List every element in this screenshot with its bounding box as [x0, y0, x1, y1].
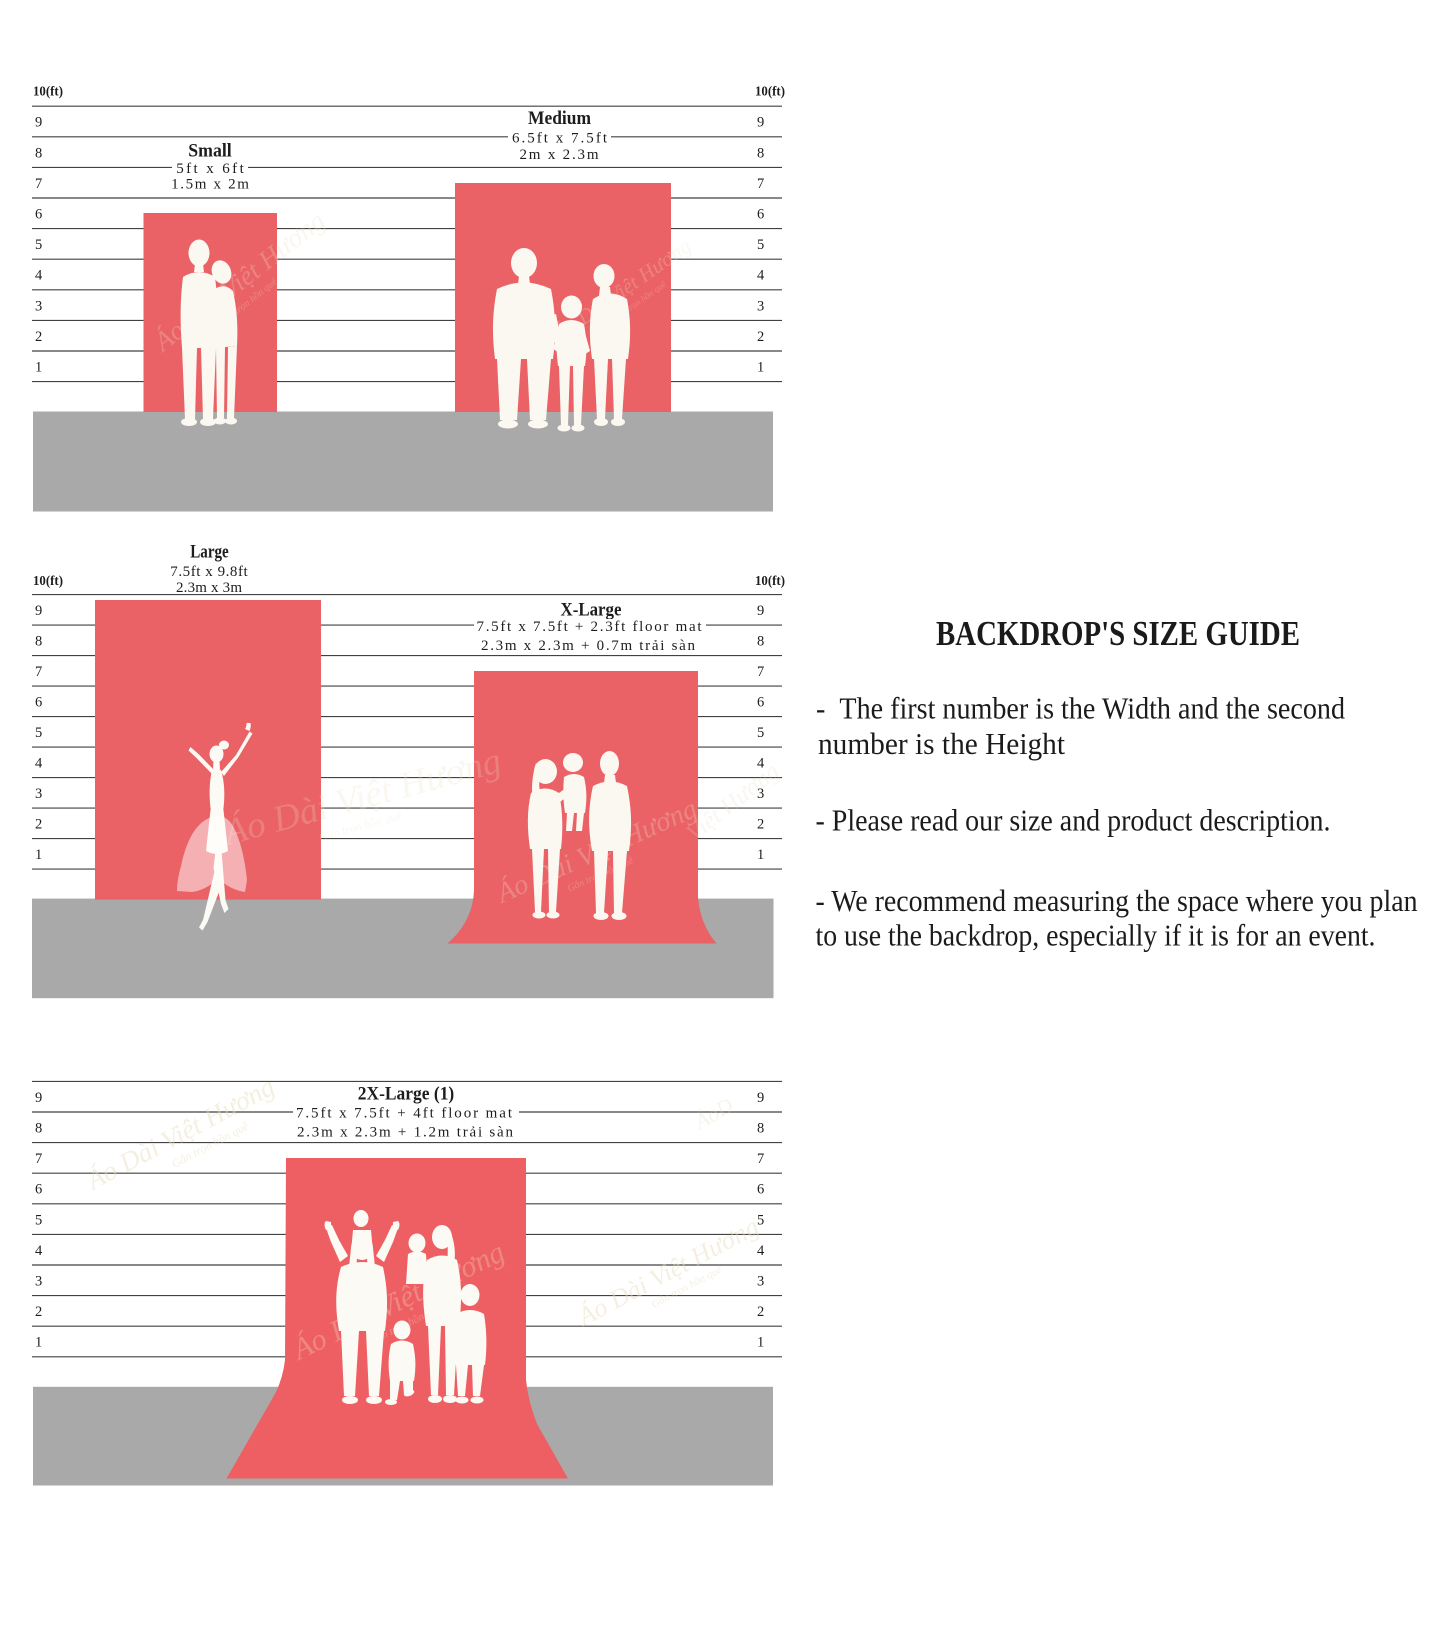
svg-text:10(ft): 10(ft) [33, 84, 63, 99]
svg-text:7: 7 [35, 664, 42, 680]
svg-text:2.3m x 2.3m + 1.2m trải sàn: 2.3m x 2.3m + 1.2m trải sàn [297, 1125, 514, 1141]
svg-text:3: 3 [35, 298, 42, 314]
svg-text:2: 2 [757, 817, 764, 833]
svg-text:- We recommend measuring the s: - We recommend measuring the space where… [816, 883, 1418, 918]
svg-text:9: 9 [35, 1090, 42, 1106]
svg-text:5: 5 [35, 1212, 42, 1228]
svg-text:4: 4 [35, 268, 43, 284]
svg-text:1.5m x 2m: 1.5m x 2m [171, 177, 249, 193]
svg-text:to use the backdrop, especiall: to use the backdrop, especially if it is… [816, 918, 1376, 953]
svg-text:7: 7 [757, 664, 764, 680]
svg-text:9: 9 [757, 1090, 764, 1106]
svg-text:6: 6 [35, 695, 42, 711]
svg-text:2: 2 [35, 817, 42, 833]
svg-text:2.3m x 3m: 2.3m x 3m [176, 580, 242, 596]
svg-text:6: 6 [757, 695, 764, 711]
svg-text:9: 9 [35, 115, 42, 131]
svg-text:4: 4 [757, 268, 765, 284]
svg-text:Medium: Medium [528, 108, 591, 129]
svg-text:8: 8 [35, 145, 42, 161]
svg-text:1: 1 [35, 1335, 42, 1351]
svg-text:5: 5 [757, 1212, 764, 1228]
svg-text:9: 9 [757, 603, 764, 619]
svg-text:2: 2 [35, 1304, 42, 1320]
svg-text:9: 9 [35, 603, 42, 619]
svg-text:- The first number is the Wid: - The first number is the Width and the … [816, 691, 1345, 726]
svg-text:3: 3 [757, 1274, 764, 1290]
svg-text:X-Large: X-Large [561, 600, 622, 621]
svg-text:2: 2 [757, 329, 764, 345]
svg-text:6.5ft x 7.5ft: 6.5ft x 7.5ft [512, 130, 608, 146]
svg-text:8: 8 [757, 634, 764, 650]
svg-text:10(ft): 10(ft) [755, 573, 785, 588]
svg-text:4: 4 [35, 756, 43, 772]
svg-text:6: 6 [35, 207, 42, 223]
svg-text:number is the Height: number is the Height [818, 726, 1065, 761]
svg-text:1: 1 [35, 847, 42, 863]
svg-text:5: 5 [35, 237, 42, 253]
svg-text:9: 9 [757, 115, 764, 131]
svg-text:8: 8 [35, 634, 42, 650]
svg-text:Large: Large [190, 542, 229, 563]
svg-text:10(ft): 10(ft) [33, 573, 63, 588]
svg-text:4: 4 [757, 1243, 765, 1259]
svg-text:5: 5 [757, 725, 764, 741]
svg-text:5: 5 [757, 237, 764, 253]
svg-text:10(ft): 10(ft) [755, 84, 785, 99]
svg-text:5: 5 [35, 725, 42, 741]
svg-text:8: 8 [757, 1121, 764, 1137]
svg-text:1: 1 [757, 360, 764, 376]
svg-text:7: 7 [757, 1151, 764, 1167]
svg-text:5ft x 6ft: 5ft x 6ft [176, 161, 244, 177]
svg-text:7.5ft x 7.5ft + 4ft floor mat: 7.5ft x 7.5ft + 4ft floor mat [296, 1106, 513, 1122]
svg-text:7: 7 [757, 176, 764, 192]
svg-text:6: 6 [757, 1182, 764, 1198]
svg-text:3: 3 [35, 786, 42, 802]
svg-text:6: 6 [757, 207, 764, 223]
svg-text:3: 3 [35, 1274, 42, 1290]
svg-text:2: 2 [35, 329, 42, 345]
svg-text:2: 2 [757, 1304, 764, 1320]
svg-text:2.3m x 2.3m + 0.7m trải sàn: 2.3m x 2.3m + 0.7m trải sàn [481, 638, 696, 654]
svg-text:4: 4 [35, 1243, 43, 1259]
svg-text:Small: Small [188, 141, 232, 162]
svg-text:2m x 2.3m: 2m x 2.3m [520, 147, 599, 163]
svg-text:8: 8 [757, 145, 764, 161]
svg-text:BACKDROP'S SIZE GUIDE: BACKDROP'S SIZE GUIDE [936, 614, 1300, 653]
svg-text:1: 1 [757, 1335, 764, 1351]
svg-text:7: 7 [35, 176, 42, 192]
svg-text:1: 1 [757, 847, 764, 863]
svg-text:7: 7 [35, 1151, 42, 1167]
svg-text:8: 8 [35, 1121, 42, 1137]
svg-text:3: 3 [757, 298, 764, 314]
svg-text:7.5ft x 9.8ft: 7.5ft x 9.8ft [170, 564, 248, 580]
svg-text:- Please read our size and pro: - Please read our size and product descr… [816, 803, 1331, 838]
svg-text:6: 6 [35, 1182, 42, 1198]
svg-text:1: 1 [35, 360, 42, 376]
svg-text:2X-Large (1): 2X-Large (1) [358, 1084, 455, 1105]
